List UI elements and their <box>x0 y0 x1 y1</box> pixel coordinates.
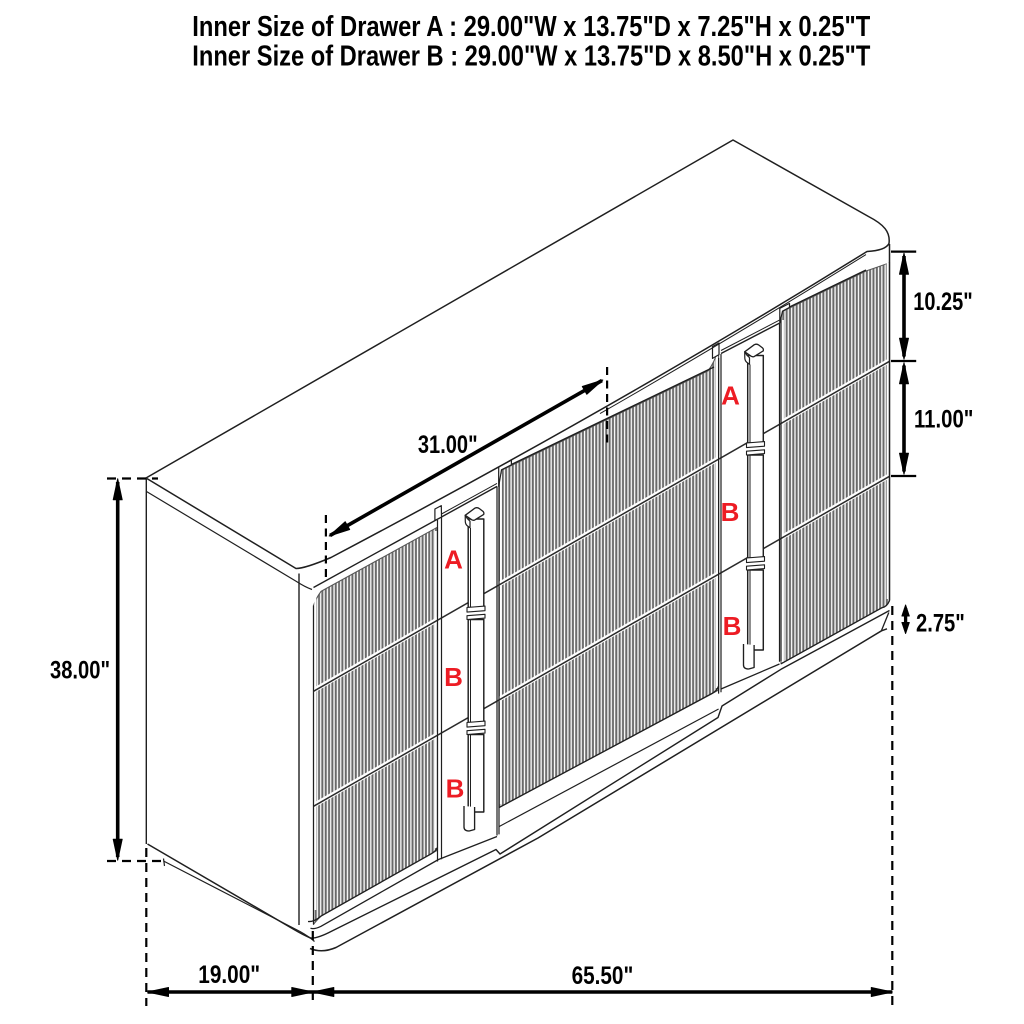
svg-text:65.50": 65.50" <box>572 962 634 990</box>
svg-text:31.00": 31.00" <box>418 431 478 459</box>
svg-text:A: A <box>444 545 463 575</box>
svg-text:B: B <box>446 774 465 804</box>
svg-text:B: B <box>444 662 463 692</box>
svg-text:11.00": 11.00" <box>914 406 973 434</box>
svg-text:10.25": 10.25" <box>913 288 972 316</box>
svg-text:Inner Size of Drawer A : 29.00: Inner Size of Drawer A : 29.00"W x 13.75… <box>192 11 870 43</box>
svg-text:19.00": 19.00" <box>198 961 260 989</box>
svg-text:B: B <box>723 611 742 641</box>
svg-text:B: B <box>721 497 740 527</box>
svg-text:Inner Size of Drawer B : 29.00: Inner Size of Drawer B : 29.00"W x 13.75… <box>192 41 870 73</box>
svg-text:2.75": 2.75" <box>916 610 965 638</box>
svg-text:38.00": 38.00" <box>50 657 110 685</box>
svg-text:A: A <box>721 381 740 411</box>
